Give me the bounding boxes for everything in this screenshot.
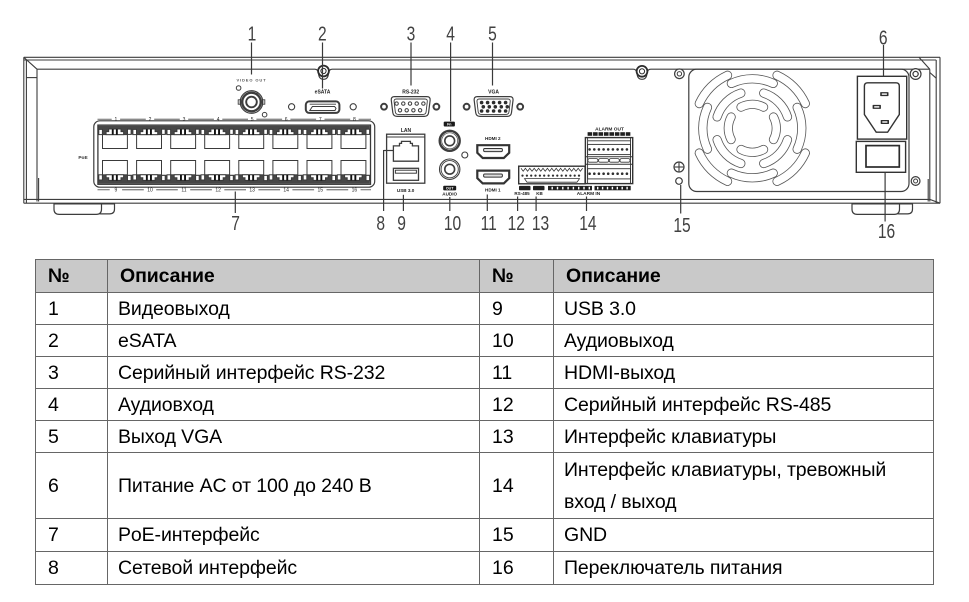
svg-text:HDMI 2: HDMI 2 [485,136,501,141]
svg-text:5: 5 [251,117,254,123]
svg-text:HDMI 1: HDMI 1 [485,188,501,193]
svg-text:12: 12 [215,188,221,194]
svg-text:13: 13 [249,188,255,194]
svg-text:VIDEO OUT: VIDEO OUT [236,78,266,83]
svg-text:ALARM IN: ALARM IN [577,191,601,197]
svg-text:4: 4 [217,117,220,123]
svg-text:RS-485: RS-485 [514,191,530,196]
svg-text:eSATA: eSATA [315,90,331,96]
svg-text:15: 15 [673,214,690,237]
svg-text:10: 10 [147,188,153,194]
svg-text:14: 14 [283,188,289,194]
svg-text:2: 2 [318,23,327,46]
svg-text:14: 14 [579,212,596,235]
svg-text:3: 3 [183,117,186,123]
svg-text:KB: KB [536,191,543,196]
svg-text:LAN: LAN [401,128,412,134]
svg-text:16: 16 [878,220,895,243]
svg-text:8: 8 [376,212,385,235]
svg-text:8: 8 [353,117,356,123]
svg-text:16: 16 [352,188,358,194]
svg-text:AUDIO: AUDIO [442,191,457,196]
svg-text:7: 7 [319,117,322,123]
svg-text:6: 6 [285,117,288,123]
svg-text:RS-232: RS-232 [402,90,419,96]
svg-text:VGA: VGA [488,90,499,96]
svg-text:3: 3 [407,23,416,46]
svg-text:USB 3.0: USB 3.0 [397,188,415,193]
svg-text:10: 10 [444,212,461,235]
svg-text:11: 11 [181,188,186,194]
svg-text:Fn: Fn [447,123,451,127]
svg-text:9: 9 [115,188,118,194]
svg-text:15: 15 [318,188,324,194]
svg-text:4: 4 [446,23,455,46]
svg-text:ALARM OUT: ALARM OUT [595,127,624,133]
svg-text:1: 1 [248,23,257,46]
svg-text:12: 12 [508,212,525,235]
svg-text:1: 1 [115,117,118,123]
svg-text:9: 9 [397,212,406,235]
svg-text:11: 11 [481,212,497,235]
svg-text:7: 7 [231,212,240,235]
svg-text:5: 5 [488,23,497,46]
svg-text:PoE: PoE [78,155,88,161]
svg-text:OUT: OUT [446,187,454,191]
svg-text:13: 13 [532,212,549,235]
svg-text:2: 2 [149,117,152,123]
